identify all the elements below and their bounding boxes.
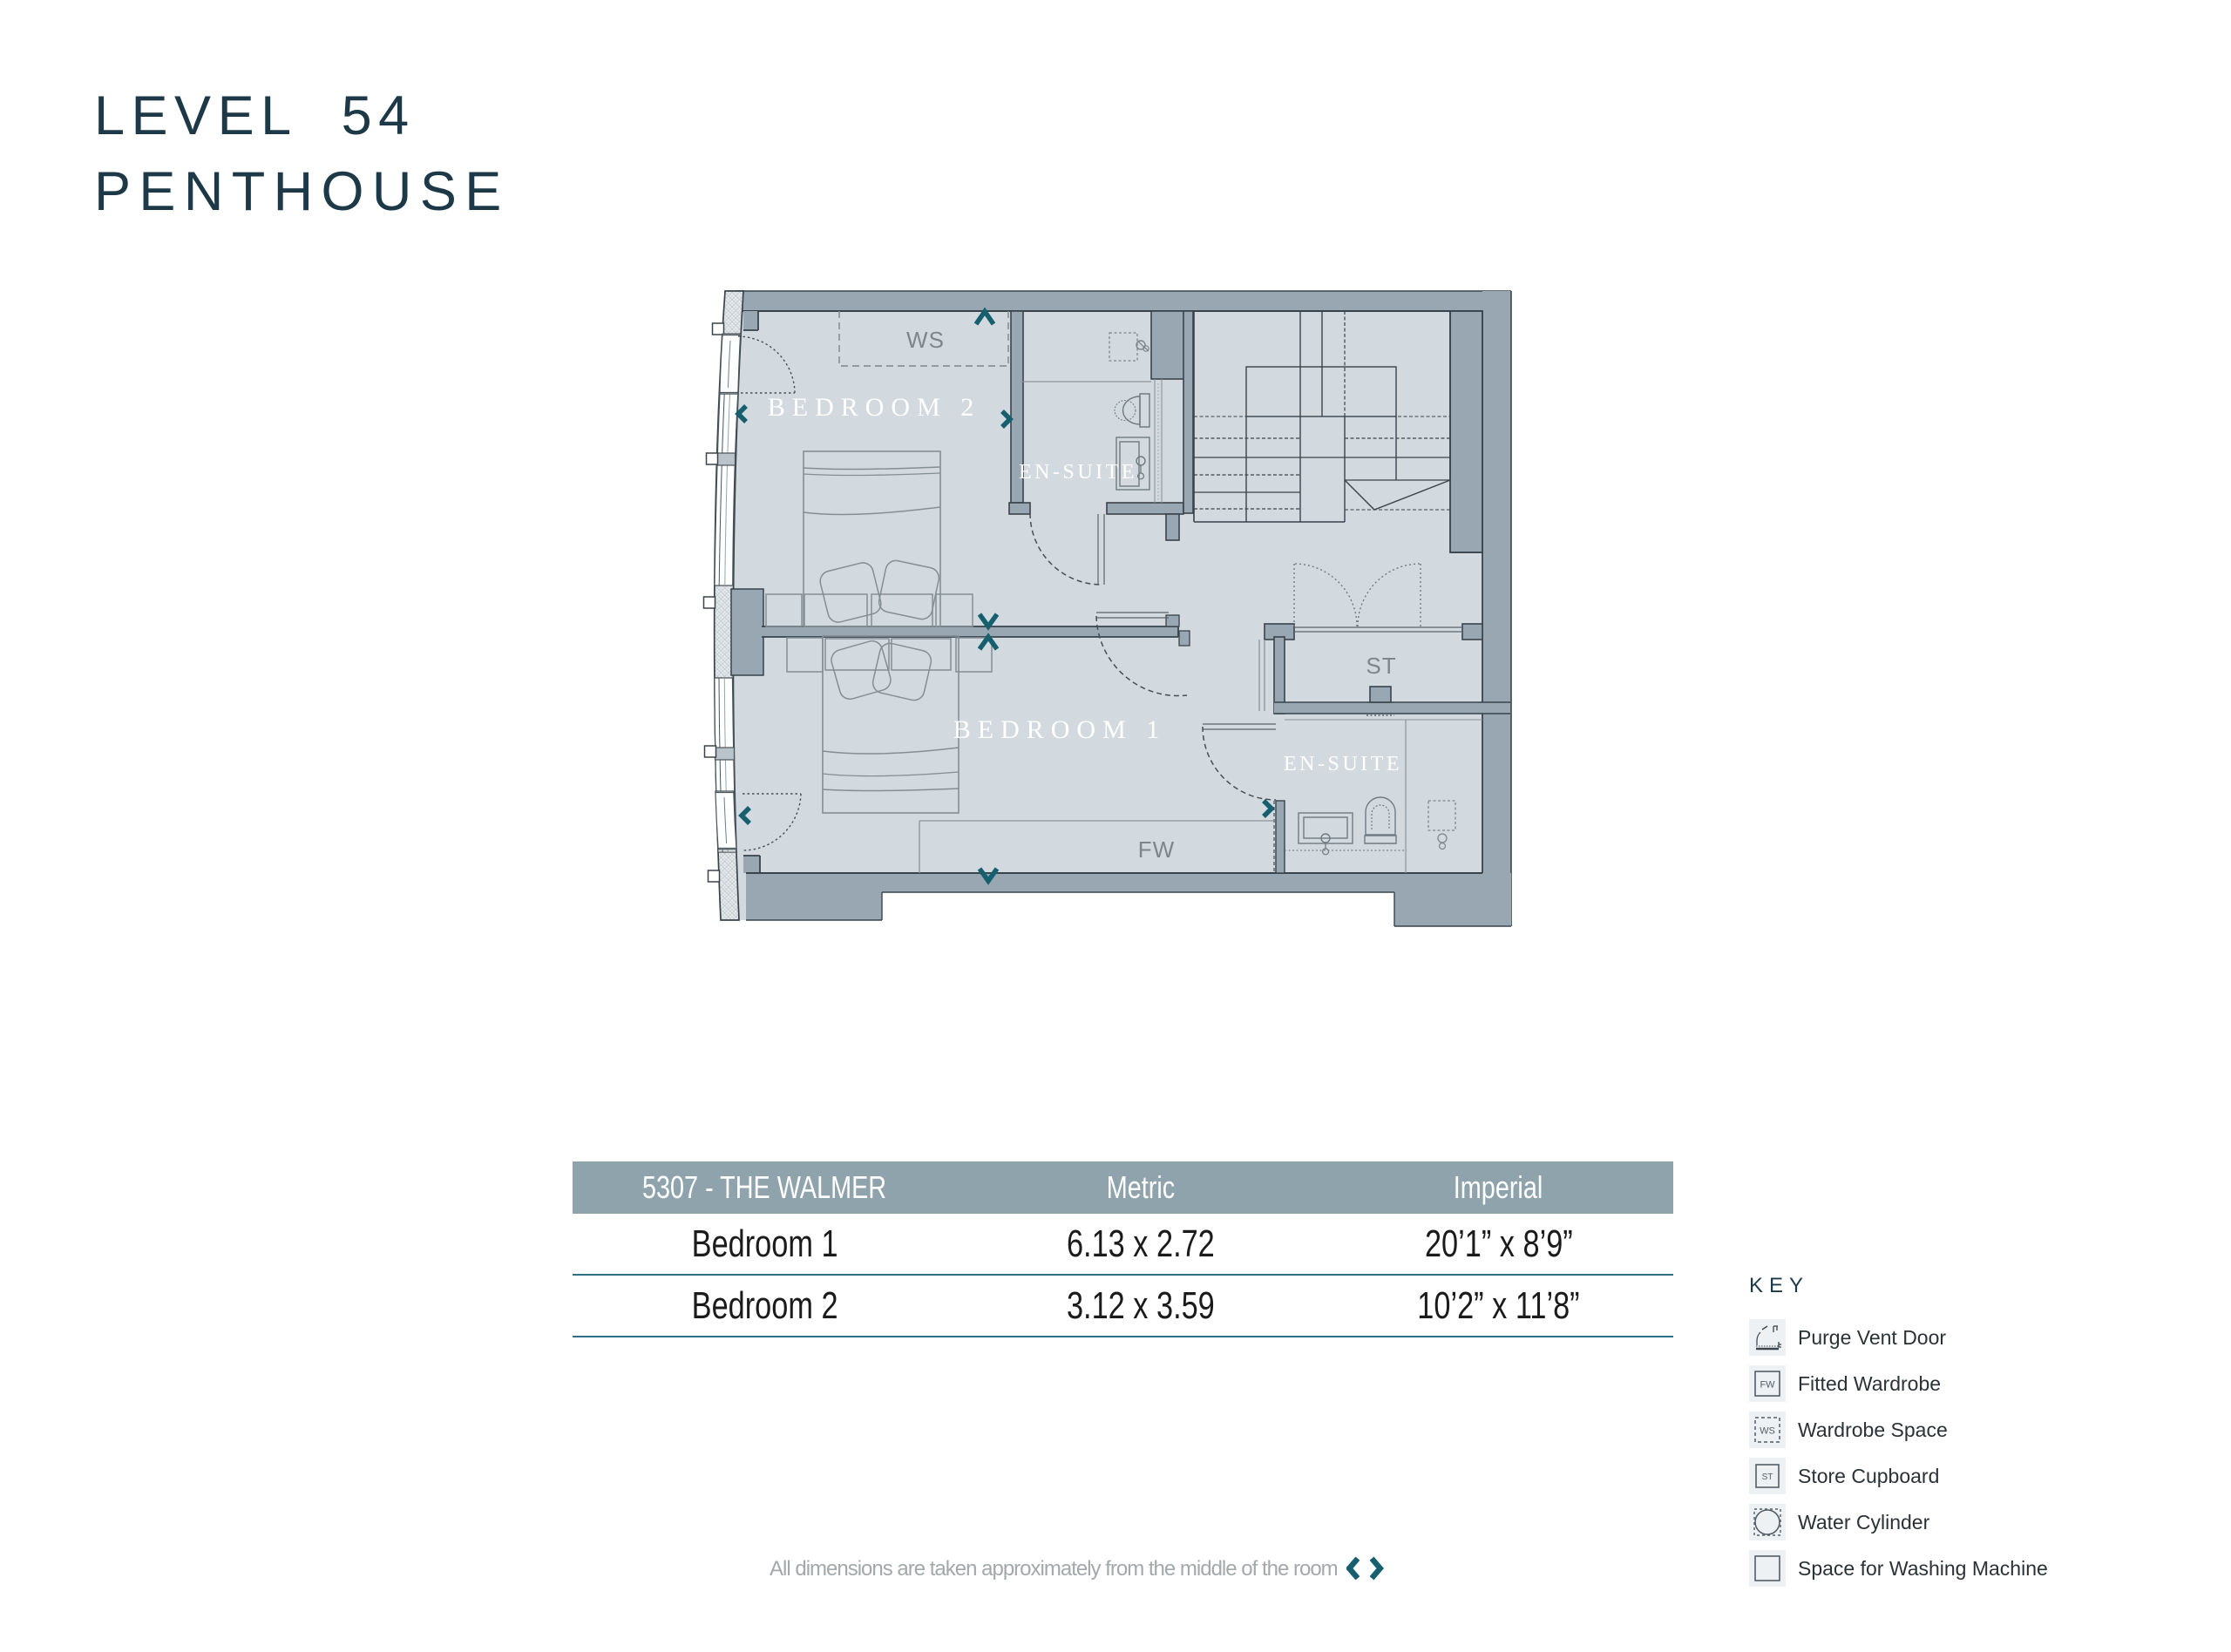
svg-text:FW: FW — [1138, 836, 1175, 863]
svg-text:FW: FW — [1760, 1380, 1775, 1391]
svg-text:WS: WS — [906, 327, 945, 353]
svg-text:BEDROOM 2: BEDROOM 2 — [768, 393, 981, 422]
svg-text:BEDROOM 1: BEDROOM 1 — [953, 715, 1167, 744]
svg-text:EN-SUITE: EN-SUITE — [1019, 461, 1137, 484]
svg-text:ST: ST — [1762, 1473, 1773, 1482]
svg-text:EN-SUITE: EN-SUITE — [1284, 753, 1402, 775]
svg-text:WS: WS — [1760, 1426, 1775, 1437]
svg-text:ST: ST — [1366, 653, 1396, 679]
